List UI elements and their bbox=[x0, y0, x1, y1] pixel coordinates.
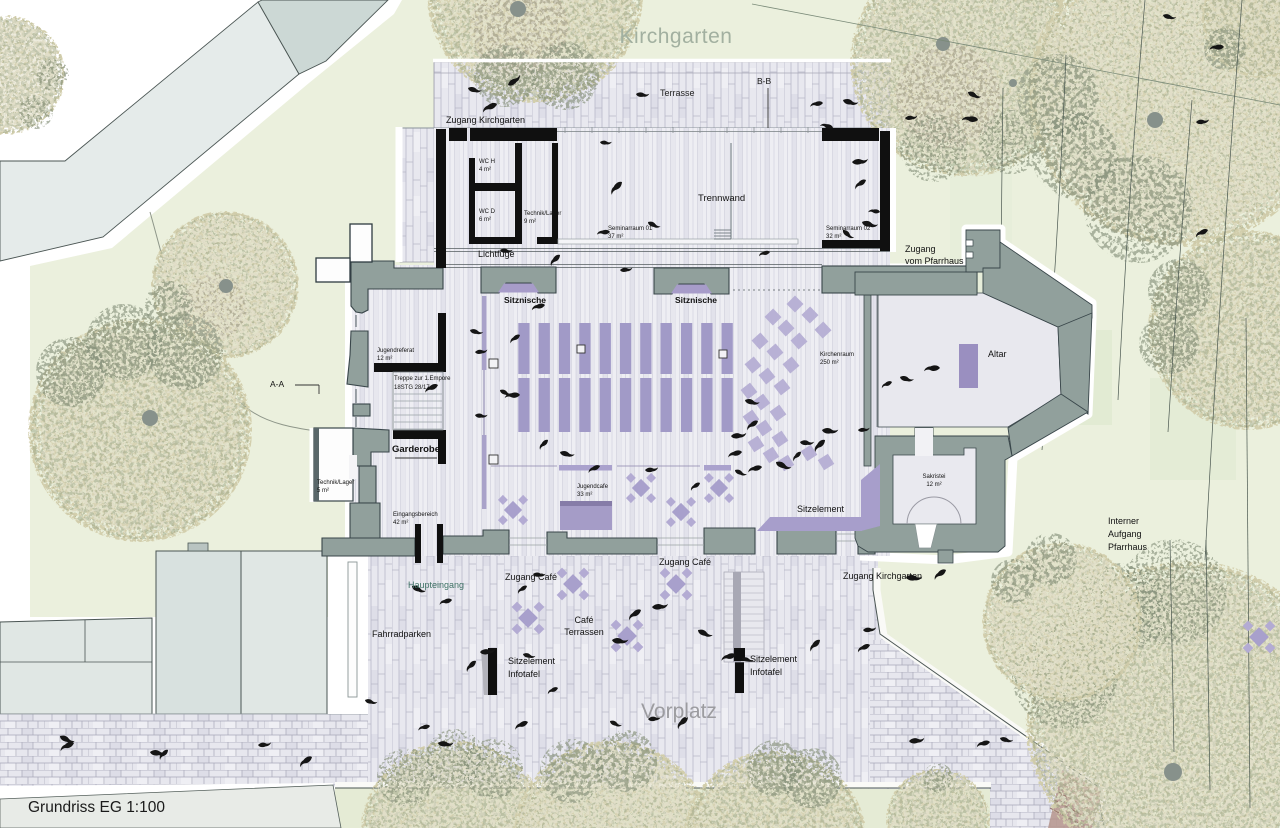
svg-text:9 m²: 9 m² bbox=[524, 219, 536, 225]
svg-text:Altar: Altar bbox=[988, 349, 1007, 359]
svg-text:Vorplatz: Vorplatz bbox=[641, 700, 717, 723]
svg-text:250 m²: 250 m² bbox=[820, 360, 839, 366]
svg-text:Pfarrhaus: Pfarrhaus bbox=[1108, 542, 1148, 552]
svg-text:32 m²: 32 m² bbox=[826, 234, 841, 240]
svg-text:Kirchenraum: Kirchenraum bbox=[820, 352, 854, 358]
svg-text:33 m²: 33 m² bbox=[577, 492, 592, 498]
svg-text:Café: Café bbox=[574, 615, 593, 625]
svg-text:Fahrradparken: Fahrradparken bbox=[372, 629, 431, 639]
svg-text:6 m²: 6 m² bbox=[479, 217, 491, 223]
svg-text:Terrasse: Terrasse bbox=[660, 88, 695, 98]
svg-text:Grundriss EG 1:100: Grundriss EG 1:100 bbox=[28, 799, 165, 816]
svg-text:Technik/Lager: Technik/Lager bbox=[524, 211, 561, 217]
svg-text:Zugang Café: Zugang Café bbox=[505, 572, 557, 582]
svg-text:4 m²: 4 m² bbox=[479, 167, 491, 173]
svg-text:Jugendcafe: Jugendcafe bbox=[577, 484, 609, 490]
svg-text:B-B: B-B bbox=[757, 76, 772, 86]
svg-text:Zugang Kirchgarten: Zugang Kirchgarten bbox=[446, 115, 525, 125]
svg-text:Lichtfuge: Lichtfuge bbox=[478, 249, 515, 259]
svg-text:Seminarraum 01: Seminarraum 01 bbox=[608, 226, 653, 232]
svg-text:WC D: WC D bbox=[479, 209, 496, 215]
svg-text:Zugang: Zugang bbox=[905, 244, 936, 254]
svg-text:Treppe zur 1.Empore: Treppe zur 1.Empore bbox=[394, 376, 451, 382]
svg-text:Kirchgarten: Kirchgarten bbox=[620, 25, 733, 48]
svg-text:Technik/Lager: Technik/Lager bbox=[317, 480, 354, 486]
svg-text:WC H: WC H bbox=[479, 159, 495, 165]
svg-text:12 m²: 12 m² bbox=[926, 482, 941, 488]
svg-text:Zugang Kirchgarten: Zugang Kirchgarten bbox=[843, 571, 922, 581]
svg-text:Haupteingang: Haupteingang bbox=[408, 580, 464, 590]
svg-text:vom Pfarrhaus: vom Pfarrhaus bbox=[905, 256, 964, 266]
svg-text:Interner: Interner bbox=[1108, 516, 1139, 526]
svg-text:Seminarraum 02: Seminarraum 02 bbox=[826, 226, 871, 232]
svg-text:Infotafel: Infotafel bbox=[750, 667, 782, 677]
svg-text:Sakristei: Sakristei bbox=[922, 474, 945, 480]
svg-text:Jugendreferat: Jugendreferat bbox=[377, 348, 414, 354]
svg-text:Trennwand: Trennwand bbox=[698, 193, 745, 204]
svg-text:Eingangsbereich: Eingangsbereich bbox=[393, 512, 438, 518]
svg-text:Sitznische: Sitznische bbox=[675, 295, 717, 305]
svg-text:A-A: A-A bbox=[270, 379, 285, 389]
svg-text:Sitznische: Sitznische bbox=[504, 295, 546, 305]
svg-text:37 m²: 37 m² bbox=[608, 234, 623, 240]
svg-text:Infotafel: Infotafel bbox=[508, 669, 540, 679]
svg-text:Garderobe: Garderobe bbox=[392, 444, 440, 455]
svg-text:12 m²: 12 m² bbox=[377, 356, 392, 362]
svg-text:5 m²: 5 m² bbox=[317, 488, 329, 494]
svg-text:Aufgang: Aufgang bbox=[1108, 529, 1142, 539]
svg-text:42 m²: 42 m² bbox=[393, 520, 408, 526]
svg-text:Sitzelement: Sitzelement bbox=[508, 656, 556, 666]
svg-text:Sitzelement: Sitzelement bbox=[750, 654, 798, 664]
svg-text:Terrassen: Terrassen bbox=[564, 627, 604, 637]
svg-text:Sitzelement: Sitzelement bbox=[797, 504, 845, 514]
svg-text:18STG 28/17: 18STG 28/17 bbox=[394, 385, 430, 391]
svg-text:Zugang Café: Zugang Café bbox=[659, 557, 711, 567]
